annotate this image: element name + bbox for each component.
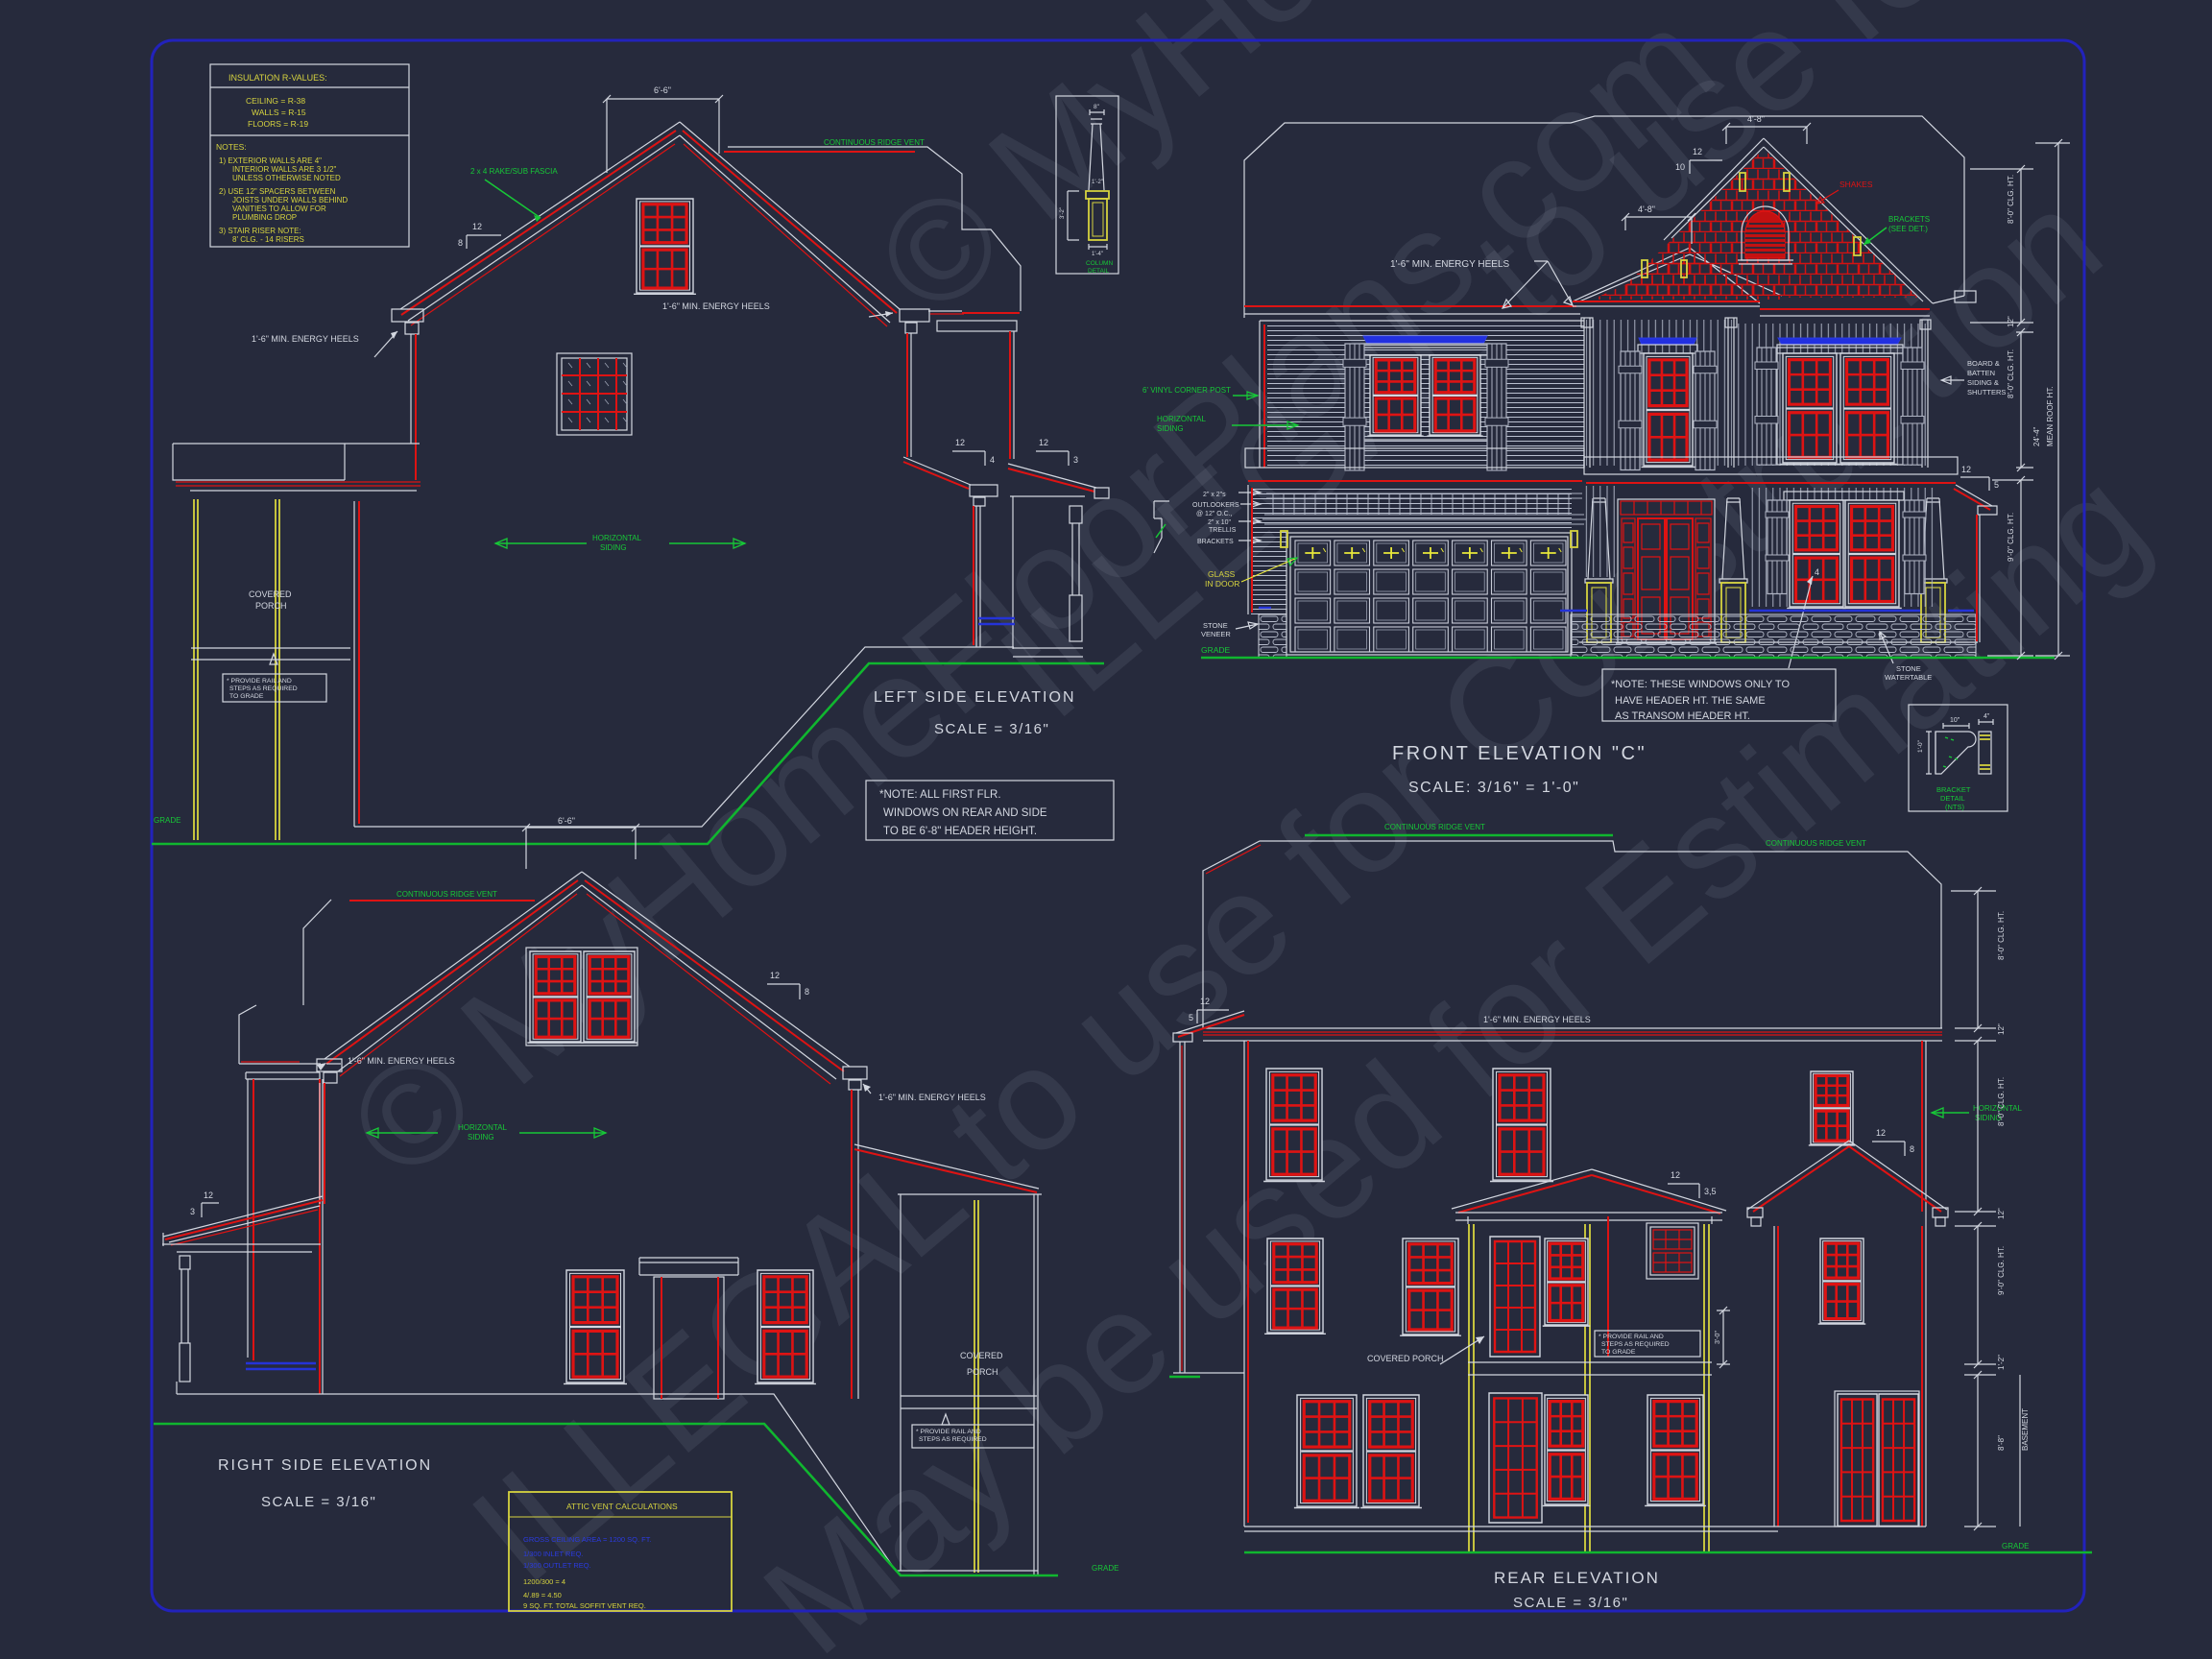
svg-text:IN DOOR: IN DOOR <box>1205 579 1239 589</box>
svg-text:1'-6" MIN. ENERGY HEELS: 1'-6" MIN. ENERGY HEELS <box>1483 1015 1591 1024</box>
svg-text:DETAIL: DETAIL <box>1088 268 1110 275</box>
svg-text:BRACKETS: BRACKETS <box>1888 215 1930 224</box>
svg-text:NOTES:: NOTES: <box>216 142 247 152</box>
svg-text:(NTS): (NTS) <box>1945 803 1964 811</box>
svg-text:8: 8 <box>1910 1144 1914 1154</box>
svg-text:BOARD &: BOARD & <box>1967 359 2000 368</box>
svg-text:HAVE HEADER HT. THE SAME: HAVE HEADER HT. THE SAME <box>1615 695 1766 707</box>
svg-text:@ 12" O.C.,: @ 12" O.C., <box>1196 511 1233 517</box>
svg-text:CONTINUOUS RIDGE VENT: CONTINUOUS RIDGE VENT <box>824 138 925 147</box>
svg-text:9'-0" CLG. HT.: 9'-0" CLG. HT. <box>2007 513 2015 562</box>
svg-text:STEPS AS REQUIRED: STEPS AS REQUIRED <box>1601 1341 1670 1348</box>
svg-text:SIDING: SIDING <box>1157 424 1184 433</box>
svg-text:1'-6" MIN. ENERGY HEELS: 1'-6" MIN. ENERGY HEELS <box>878 1093 986 1102</box>
svg-text:JOISTS UNDER WALLS BEHIND: JOISTS UNDER WALLS BEHIND <box>232 196 348 204</box>
svg-text:4: 4 <box>1815 567 1819 577</box>
svg-text:SCALE = 3/16": SCALE = 3/16" <box>1513 1595 1628 1611</box>
svg-text:MEAN ROOF HT.: MEAN ROOF HT. <box>2046 386 2055 446</box>
svg-text:12: 12 <box>1961 465 1971 474</box>
svg-text:12: 12 <box>1200 997 1210 1006</box>
svg-text:2) USE 12" SPACERS BETWEEN: 2) USE 12" SPACERS BETWEEN <box>219 187 336 196</box>
svg-text:STEPS AS REQUIRED: STEPS AS REQUIRED <box>229 685 298 692</box>
svg-text:BASEMENT: BASEMENT <box>2021 1408 2030 1451</box>
svg-text:12: 12 <box>955 438 965 447</box>
svg-text:GLASS: GLASS <box>1208 569 1236 579</box>
svg-text:REAR ELEVATION: REAR ELEVATION <box>1494 1569 1660 1587</box>
svg-text:GRADE: GRADE <box>1092 1564 1118 1573</box>
svg-text:CONTINUOUS RIDGE VENT: CONTINUOUS RIDGE VENT <box>1384 823 1485 831</box>
svg-text:3'-2": 3'-2" <box>1060 207 1066 219</box>
svg-text:UNLESS OTHERWISE NOTED: UNLESS OTHERWISE NOTED <box>232 174 341 182</box>
svg-text:COVERED: COVERED <box>960 1351 1003 1360</box>
svg-text:8": 8" <box>1094 104 1100 110</box>
svg-text:SCALE = 3/16": SCALE = 3/16" <box>261 1494 376 1510</box>
svg-text:3: 3 <box>1073 455 1078 465</box>
svg-text:AS TRANSOM HEADER HT.: AS TRANSOM HEADER HT. <box>1615 710 1750 722</box>
svg-text:ATTIC VENT CALCULATIONS: ATTIC VENT CALCULATIONS <box>566 1502 678 1511</box>
svg-text:TO BE 6'-8" HEADER HEIGHT.: TO BE 6'-8" HEADER HEIGHT. <box>883 826 1037 837</box>
svg-text:FLOORS = R-19: FLOORS = R-19 <box>248 119 308 129</box>
svg-text:TO GRADE: TO GRADE <box>1601 1349 1636 1356</box>
svg-text:(SEE DET.): (SEE DET.) <box>1888 225 1928 233</box>
svg-text:STONE: STONE <box>1203 621 1228 630</box>
svg-text:CONTINUOUS RIDGE VENT: CONTINUOUS RIDGE VENT <box>1766 839 1866 848</box>
svg-text:4/.89 = 4.50: 4/.89 = 4.50 <box>523 1591 562 1599</box>
svg-text:12: 12 <box>1039 438 1048 447</box>
svg-text:HORIZONTAL: HORIZONTAL <box>458 1123 508 1132</box>
svg-text:PORCH: PORCH <box>967 1367 998 1377</box>
svg-text:10": 10" <box>1950 717 1960 724</box>
svg-text:6'-6": 6'-6" <box>558 816 575 826</box>
svg-text:8'-0" CLG. HT.: 8'-0" CLG. HT. <box>1997 911 2006 960</box>
svg-text:GRADE: GRADE <box>154 816 180 825</box>
svg-text:1/300 INLET REQ.: 1/300 INLET REQ. <box>523 1550 583 1558</box>
svg-text:9'-0" CLG. HT.: 9'-0" CLG. HT. <box>1997 1246 2006 1295</box>
svg-text:RIGHT SIDE ELEVATION: RIGHT SIDE ELEVATION <box>218 1457 432 1474</box>
svg-text:STONE: STONE <box>1896 664 1921 673</box>
svg-text:STEPS AS REQUIRED: STEPS AS REQUIRED <box>919 1436 987 1443</box>
svg-text:OUTLOOKERS: OUTLOOKERS <box>1192 502 1239 509</box>
svg-text:1200/300 = 4: 1200/300 = 4 <box>523 1577 565 1586</box>
svg-text:GRADE: GRADE <box>1201 645 1231 655</box>
svg-text:6' VINYL CORNER POST: 6' VINYL CORNER POST <box>1142 386 1231 395</box>
svg-text:1'-2": 1'-2" <box>1997 1355 2006 1370</box>
svg-text:12": 12" <box>1997 1208 2006 1219</box>
svg-text:BATTEN: BATTEN <box>1967 369 1995 377</box>
svg-text:1) EXTERIOR WALLS ARE 4": 1) EXTERIOR WALLS ARE 4" <box>219 156 322 165</box>
svg-text:CEILING = R-38: CEILING = R-38 <box>246 96 305 106</box>
svg-text:PORCH: PORCH <box>255 601 287 611</box>
svg-text:INTERIOR WALLS ARE 3 1/2": INTERIOR WALLS ARE 3 1/2" <box>232 165 337 174</box>
svg-text:GRADE: GRADE <box>2002 1542 2029 1551</box>
svg-text:12: 12 <box>770 971 780 980</box>
svg-text:6'-6": 6'-6" <box>654 85 671 95</box>
svg-text:* PROVIDE RAIL AND: * PROVIDE RAIL AND <box>1599 1334 1664 1340</box>
svg-text:3,5: 3,5 <box>1704 1187 1717 1196</box>
svg-text:* PROVIDE RAIL AND: * PROVIDE RAIL AND <box>227 678 292 685</box>
svg-text:3'-0": 3'-0" <box>1715 1331 1721 1344</box>
svg-text:8: 8 <box>458 238 463 248</box>
svg-text:BRACKET: BRACKET <box>1936 785 1971 794</box>
svg-text:10: 10 <box>1675 162 1685 172</box>
svg-text:5: 5 <box>1189 1013 1193 1022</box>
svg-text:12: 12 <box>1671 1170 1680 1180</box>
svg-text:FRONT ELEVATION "C": FRONT ELEVATION "C" <box>1392 743 1647 764</box>
svg-text:4": 4" <box>1984 713 1990 720</box>
svg-text:3) STAIR RISER NOTE:: 3) STAIR RISER NOTE: <box>219 227 301 235</box>
svg-text:12: 12 <box>204 1190 213 1200</box>
svg-text:SIDING: SIDING <box>600 543 627 552</box>
svg-text:8'-8": 8'-8" <box>1997 1435 2006 1451</box>
svg-text:1'-0": 1'-0" <box>1917 739 1924 753</box>
svg-text:WINDOWS ON REAR AND SIDE: WINDOWS ON REAR AND SIDE <box>883 807 1047 819</box>
svg-text:8'-0" CLG. HT.: 8'-0" CLG. HT. <box>2007 349 2015 398</box>
svg-text:PLUMBING DROP: PLUMBING DROP <box>232 213 297 222</box>
svg-text:12": 12" <box>1997 1023 2006 1035</box>
svg-text:9 SQ. FT. TOTAL SOFFIT VENT RE: 9 SQ. FT. TOTAL SOFFIT VENT REQ. <box>523 1601 646 1610</box>
svg-text:COVERED: COVERED <box>249 589 292 599</box>
svg-text:*NOTE: THESE WINDOWS ONLY TO: *NOTE: THESE WINDOWS ONLY TO <box>1611 679 1790 690</box>
svg-text:5: 5 <box>1994 480 1999 490</box>
svg-text:DETAIL: DETAIL <box>1940 794 1965 803</box>
svg-text:12": 12" <box>2007 316 2015 327</box>
svg-text:COLUMN: COLUMN <box>1086 260 1113 267</box>
svg-text:LEFT SIDE ELEVATION: LEFT SIDE ELEVATION <box>874 689 1076 706</box>
svg-text:1'-6" MIN. ENERGY HEELS: 1'-6" MIN. ENERGY HEELS <box>662 301 770 311</box>
svg-text:TO GRADE: TO GRADE <box>229 693 264 700</box>
svg-text:SHUTTERS: SHUTTERS <box>1967 388 2006 397</box>
svg-text:2" x 10": 2" x 10" <box>1208 519 1232 526</box>
svg-text:12: 12 <box>1876 1128 1886 1138</box>
svg-text:*NOTE: ALL FIRST FLR.: *NOTE: ALL FIRST FLR. <box>879 789 1001 801</box>
svg-text:3: 3 <box>190 1207 195 1216</box>
svg-text:SIDING &: SIDING & <box>1967 378 1999 387</box>
svg-text:4'-8": 4'-8" <box>1747 114 1765 124</box>
svg-text:VENEER: VENEER <box>1201 630 1231 638</box>
svg-text:2 x 4 RAKE/SUB FASCIA: 2 x 4 RAKE/SUB FASCIA <box>470 167 558 176</box>
svg-text:1'-6" MIN. ENERGY HEELS: 1'-6" MIN. ENERGY HEELS <box>252 334 359 344</box>
svg-text:WALLS = R-15: WALLS = R-15 <box>252 108 306 117</box>
svg-text:1'-6" MIN. ENERGY HEELS: 1'-6" MIN. ENERGY HEELS <box>1390 259 1510 270</box>
svg-text:8: 8 <box>805 987 809 997</box>
svg-text:1'-6" MIN. ENERGY HEELS: 1'-6" MIN. ENERGY HEELS <box>348 1056 455 1066</box>
svg-text:INSULATION R-VALUES:: INSULATION R-VALUES: <box>228 73 327 83</box>
svg-text:VANITIES TO ALLOW FOR: VANITIES TO ALLOW FOR <box>232 204 326 213</box>
svg-text:CONTINUOUS RIDGE VENT: CONTINUOUS RIDGE VENT <box>397 890 497 899</box>
svg-text:SIDING: SIDING <box>468 1133 494 1142</box>
svg-text:TRELLIS: TRELLIS <box>1209 527 1237 534</box>
svg-text:1'-2": 1'-2" <box>1092 180 1103 185</box>
svg-text:4: 4 <box>990 455 995 465</box>
svg-text:SCALE = 3/16": SCALE = 3/16" <box>934 721 1049 737</box>
svg-text:8'-0" CLG. HT.: 8'-0" CLG. HT. <box>1997 1077 2006 1126</box>
svg-text:8'-0" CLG. HT.: 8'-0" CLG. HT. <box>2007 175 2015 224</box>
svg-text:BRACKETS: BRACKETS <box>1197 539 1234 545</box>
svg-text:* PROVIDE RAIL AND: * PROVIDE RAIL AND <box>916 1429 981 1435</box>
svg-text:8' CLG. - 14 RISERS: 8' CLG. - 14 RISERS <box>232 235 304 244</box>
svg-text:SCALE: 3/16" = 1'-0": SCALE: 3/16" = 1'-0" <box>1408 780 1579 796</box>
svg-text:HORIZONTAL: HORIZONTAL <box>592 534 642 542</box>
svg-text:1'-4": 1'-4" <box>1092 252 1103 257</box>
svg-text:COVERED PORCH: COVERED PORCH <box>1367 1354 1444 1363</box>
svg-text:12: 12 <box>472 222 482 231</box>
svg-text:GROSS CEILING AREA = 1200 SQ.: GROSS CEILING AREA = 1200 SQ. FT. <box>523 1535 652 1544</box>
svg-text:HORIZONTAL: HORIZONTAL <box>1157 415 1207 423</box>
svg-text:2" x 2"s: 2" x 2"s <box>1203 492 1226 498</box>
svg-text:SHAKES: SHAKES <box>1839 180 1873 189</box>
svg-text:1/300 OUTLET REQ.: 1/300 OUTLET REQ. <box>523 1561 591 1570</box>
svg-text:24'-4": 24'-4" <box>2032 426 2041 446</box>
svg-text:12: 12 <box>1693 147 1702 156</box>
svg-text:WATERTABLE: WATERTABLE <box>1885 673 1932 682</box>
svg-text:4'-8": 4'-8" <box>1638 204 1655 214</box>
